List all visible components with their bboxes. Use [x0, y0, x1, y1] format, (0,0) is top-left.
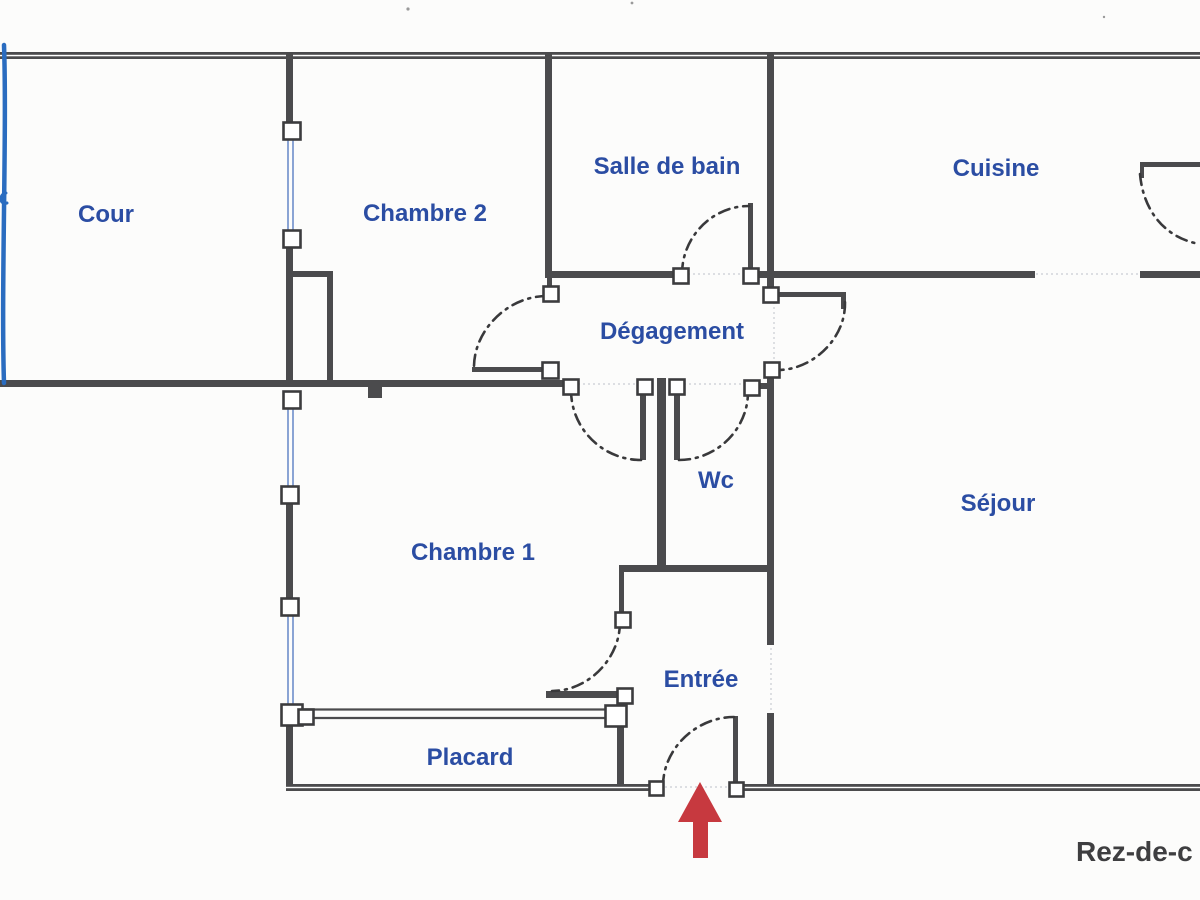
wall-cour-south	[0, 380, 572, 387]
placard-square-right-big	[606, 706, 627, 727]
window-glazing-cour	[288, 139, 293, 231]
wall-top-inner	[0, 55, 1200, 57]
scan-artifact-blue-line	[1, 45, 7, 383]
door-leaf-chambre1	[640, 388, 646, 460]
room-label-entree: Entrée	[664, 666, 739, 693]
wall-placard-west	[286, 718, 293, 791]
door-leaf-sejour	[771, 292, 846, 297]
window-square	[282, 487, 299, 504]
door-square	[744, 269, 759, 284]
window-square	[284, 231, 301, 248]
door-square	[564, 380, 579, 395]
door-square	[638, 380, 653, 395]
wall-cuisine-west	[767, 52, 774, 300]
room-label-placard: Placard	[427, 744, 514, 771]
scan-speck	[631, 2, 634, 5]
door-square	[650, 782, 664, 796]
wall-cuisine-south-right	[1140, 271, 1200, 278]
window-square	[282, 599, 299, 616]
door-leaf-cuisine	[1140, 162, 1200, 167]
window-square	[284, 123, 301, 140]
wall-west-upper	[286, 52, 293, 124]
door-leaf-entrance	[733, 716, 738, 786]
wall-sejour-west-stub	[767, 713, 774, 791]
wall-nub-below	[368, 387, 382, 398]
door-leaf-entree-chambre1	[619, 572, 624, 618]
wall-wc-west	[657, 378, 666, 572]
windows	[288, 139, 293, 704]
wall-sejour-west	[767, 364, 774, 645]
door-arc-chambre1	[571, 390, 641, 460]
room-label-chambre2: Chambre 2	[363, 200, 487, 227]
door-square	[674, 269, 689, 284]
entrance-arrow	[678, 782, 722, 858]
wall-cuisine-south-left	[751, 271, 1035, 278]
room-label-salle-de-bain: Salle de bain	[594, 153, 741, 180]
scan-speck	[1103, 16, 1105, 18]
window-glazing-chambre1-lower	[288, 615, 293, 704]
window-glazing-chambre1-upper	[288, 408, 293, 487]
door-square	[544, 287, 559, 302]
wall-chambre2-east	[545, 52, 552, 278]
door-square	[764, 288, 779, 303]
wall-west-mid	[286, 246, 293, 383]
room-label-wc: Wc	[698, 467, 734, 494]
door-arc-sejour	[778, 302, 845, 370]
door-arc-chambre2	[474, 296, 547, 367]
floorplan-canvas: Cour Chambre 2 Salle de bain Cuisine Dég…	[0, 0, 1200, 900]
door-arc-cuisine	[1140, 174, 1199, 244]
room-label-cour: Cour	[78, 201, 134, 228]
placard-doors	[298, 710, 607, 719]
door-square	[730, 783, 744, 797]
window-square	[284, 392, 301, 409]
scan-speck	[406, 7, 409, 10]
door-arc-entree-chambre1	[552, 622, 620, 691]
room-label-sejour: Séjour	[961, 490, 1036, 517]
door-leaf-wc	[674, 388, 680, 460]
door-square	[616, 613, 631, 628]
placard-square-right-small	[618, 689, 633, 704]
wall-sdb-south	[545, 271, 687, 278]
chimney-cap	[286, 271, 333, 277]
door-leaf-sdb	[748, 203, 753, 273]
placard-square-left-small	[299, 710, 314, 725]
room-labels: Cour Chambre 2 Salle de bain Cuisine Dég…	[78, 153, 1193, 867]
room-label-cuisine: Cuisine	[953, 155, 1040, 182]
room-label-degagement: Dégagement	[600, 318, 744, 345]
wall-wc-south	[619, 565, 772, 572]
door-square	[543, 363, 559, 379]
door-leaf-chambre2	[472, 367, 544, 372]
door-square	[765, 363, 780, 378]
chimney-right-side	[327, 271, 333, 383]
room-label-chambre1: Chambre 1	[411, 539, 535, 566]
wall-bottom-left-inner	[286, 787, 656, 788]
wall-west-lower-mid	[286, 502, 293, 601]
door-square	[745, 381, 760, 396]
floorplan-drawing: Cour Chambre 2 Salle de bain Cuisine Dég…	[0, 0, 1200, 900]
door-arc-wc	[679, 392, 748, 460]
wall-bottom-right-inner	[733, 787, 1200, 788]
floor-title-label: Rez-de-c	[1076, 836, 1193, 867]
door-arc-entrance	[663, 717, 734, 786]
door-arc-sdb	[682, 206, 749, 274]
door-square	[670, 380, 685, 395]
